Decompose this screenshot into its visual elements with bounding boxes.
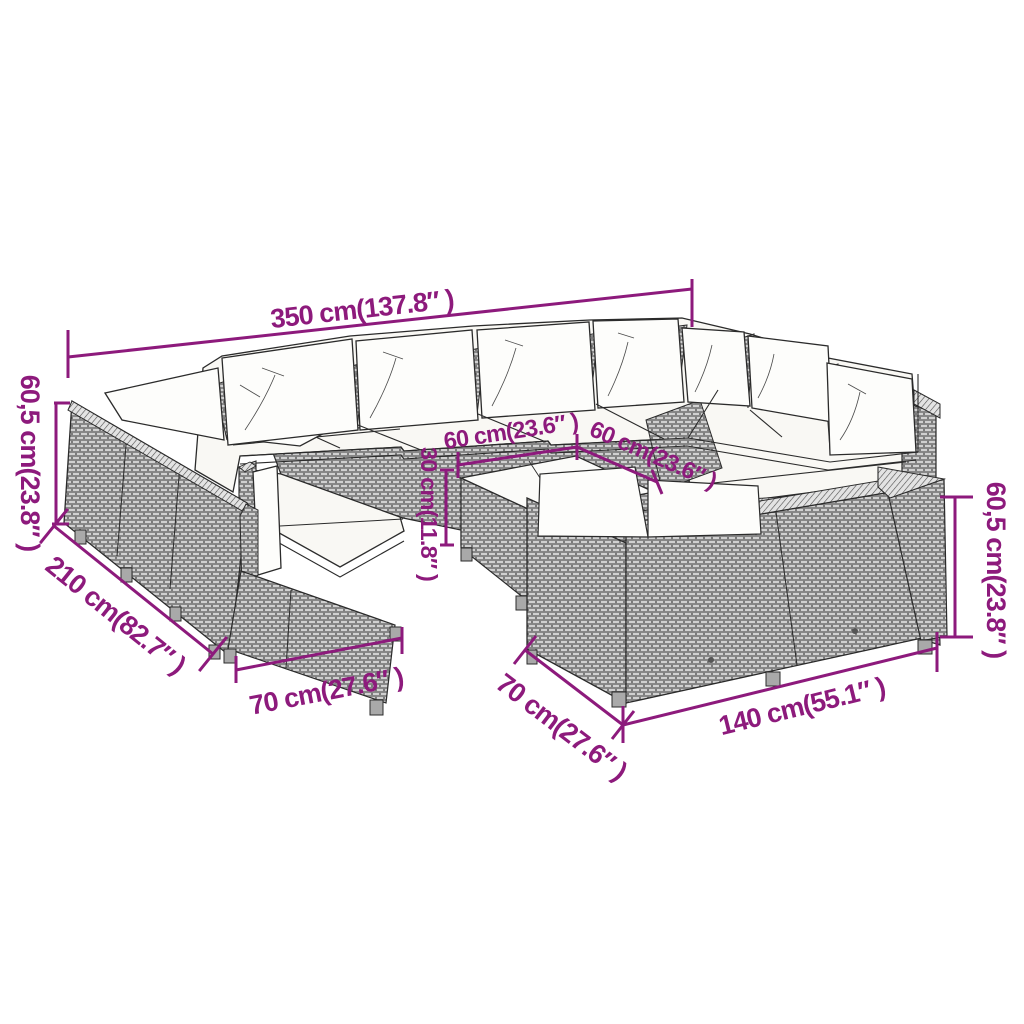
svg-text:60,5 cm(23.8″ ): 60,5 cm(23.8″ ) <box>981 482 1011 659</box>
svg-text:30 cm(11.8″ ): 30 cm(11.8″ ) <box>416 447 442 581</box>
svg-text:60,5 cm(23.8″ ): 60,5 cm(23.8″ ) <box>15 375 45 552</box>
svg-text:350 cm(137.8″ ): 350 cm(137.8″ ) <box>269 284 455 334</box>
